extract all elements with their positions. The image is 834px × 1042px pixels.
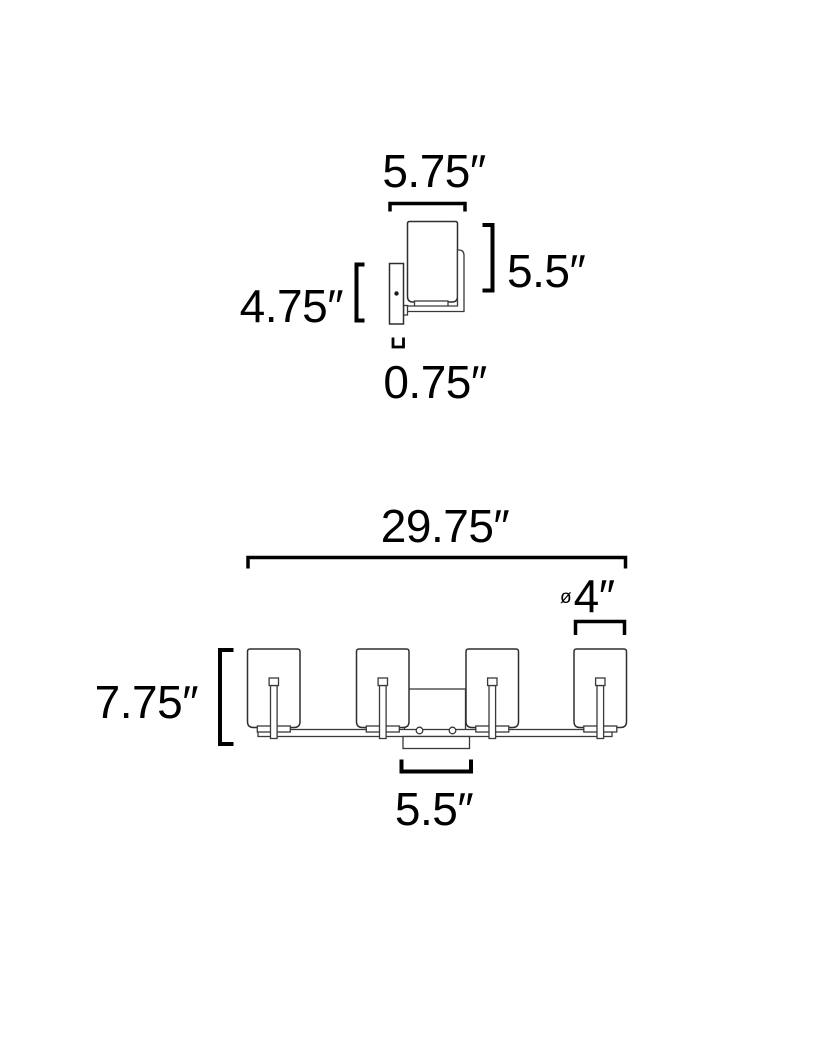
front-stem-4 [597,686,604,739]
front-shade-diameter-value: 4″ [574,570,615,622]
side-backplate-depth-dimension: 0.75″ [383,359,486,405]
dimension-diagram: 5.75″ 5.5″ 4.75″ 0.75″ 29.75″ ø4″ 7.75″ … [0,0,834,1042]
canopy-screw-icon [416,727,423,734]
front-stem-cap-3 [488,678,497,686]
side-backplate-depth-bracket [393,338,404,348]
front-canopy [403,737,470,749]
front-stem-cap-1 [269,678,278,686]
front-overall-height-dimension: 7.75″ [95,679,198,725]
side-projection-dimension: 5.75″ [382,148,485,194]
front-backplate [405,689,466,731]
front-stem-cap-4 [596,678,605,686]
front-canopy-width-dimension: 5.5″ [395,786,473,832]
front-shade-diameter-dimension: ø4″ [560,573,614,619]
front-stem-2 [380,686,387,739]
side-width-bracket [390,204,465,212]
side-shade-height-bracket [483,225,493,291]
front-overall-width-dimension: 29.75″ [381,503,509,549]
overall-width-bracket [248,558,626,569]
side-view-drawing [357,204,493,348]
front-stem-3 [489,686,496,739]
shade-diameter-bracket [576,622,625,636]
front-stem-1 [271,686,278,739]
side-backplate-height-bracket [357,265,365,321]
canopy-width-bracket [402,760,472,772]
side-shade [408,222,458,303]
diameter-symbol: ø [560,587,572,608]
overall-height-bracket [220,650,234,744]
front-stem-cap-2 [378,678,387,686]
side-screw-icon [394,291,398,295]
side-shade-height-dimension: 5.5″ [507,248,585,294]
canopy-screw-icon [449,727,456,734]
front-rail [258,730,612,737]
side-backplate-height-dimension: 4.75″ [240,283,343,329]
